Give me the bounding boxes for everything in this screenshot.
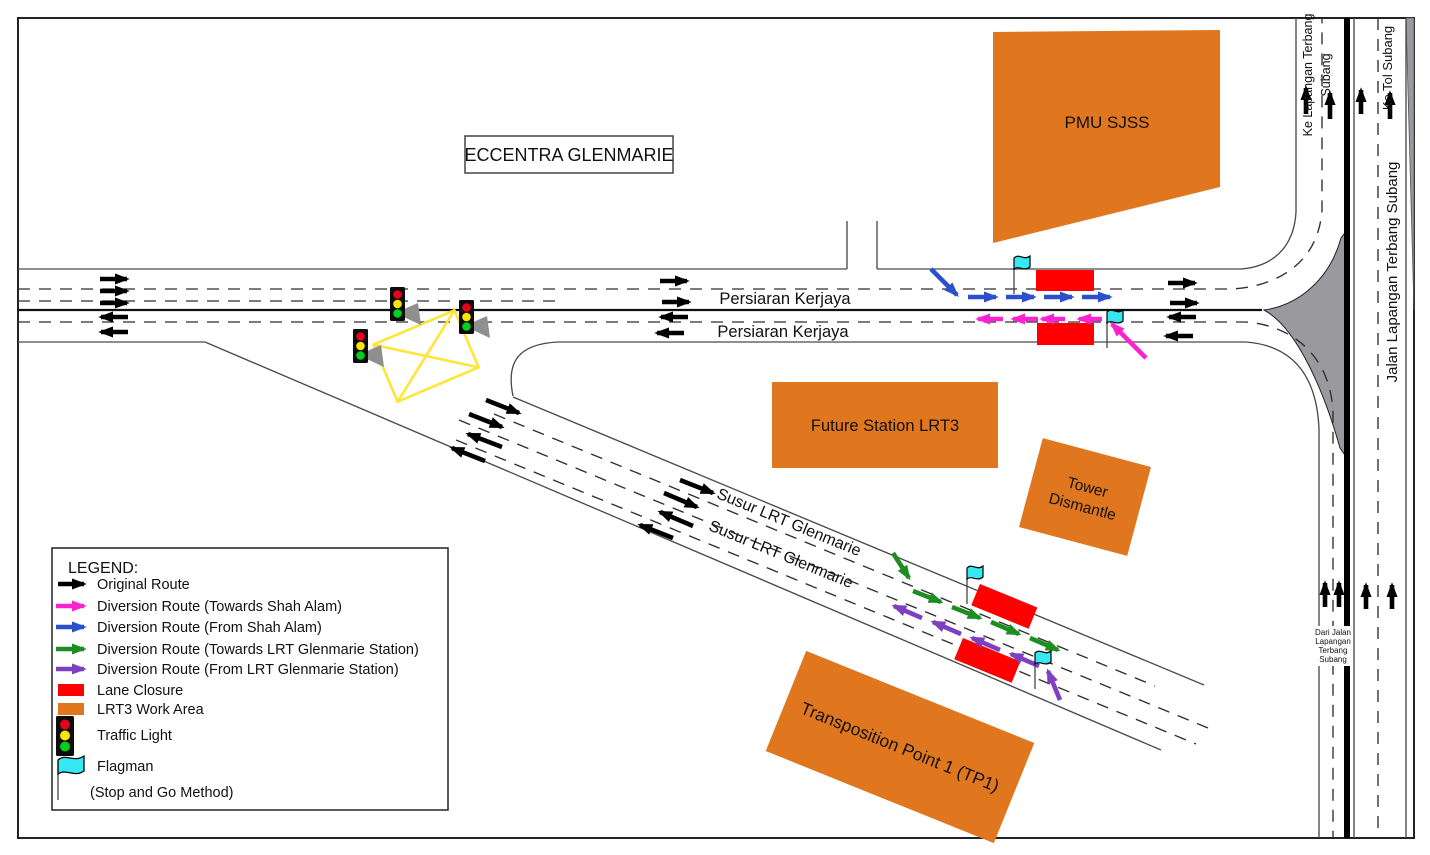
legend-label: LRT3 Work Area	[97, 702, 205, 718]
lane-closure-swatch	[58, 684, 84, 696]
flagman-icon	[58, 756, 84, 774]
legend: LEGEND: Original Route Diversion Route (…	[52, 548, 448, 810]
legend-label: Diversion Route (Towards Shah Alam)	[97, 599, 342, 615]
legend-label: Diversion Route (From LRT Glenmarie Stat…	[97, 662, 399, 678]
dari-jalan-label: Dari Jalan Lapangan Terbang Subang	[1315, 626, 1351, 666]
dari-line1: Dari Jalan	[1315, 628, 1351, 637]
eccentra-glenmarie-box: ECCENTRA GLENMARIE	[464, 136, 673, 173]
lane-closure-westbound	[1037, 323, 1094, 345]
legend-sublabel: (Stop and Go Method)	[90, 785, 233, 801]
dari-line4: Subang	[1319, 655, 1347, 664]
dari-line3: Terbang	[1319, 646, 1348, 655]
future-station-label: Future Station LRT3	[811, 417, 959, 435]
legend-item-diversion-towards-lrt: Diversion Route (Towards LRT Glenmarie S…	[56, 642, 419, 658]
work-area-swatch	[58, 703, 84, 715]
pmu-sjss-label: PMU SJSS	[1064, 113, 1149, 132]
ke-lapangan-label-line1: Ke Lapangan Terbang	[1301, 14, 1315, 137]
persiaran-kerjaya-top-label: Persiaran Kerjaya	[719, 290, 851, 308]
legend-item-diversion-towards-shah-alam: Diversion Route (Towards Shah Alam)	[56, 599, 342, 615]
eccentra-glenmarie-label: ECCENTRA GLENMARIE	[464, 145, 673, 165]
legend-label: Flagman	[97, 759, 153, 775]
legend-label: Diversion Route (From Shah Alam)	[97, 620, 322, 636]
legend-title: LEGEND:	[68, 560, 138, 577]
traffic-diversion-plan: PMU SJSS Future Station LRT3 Tower Disma…	[0, 0, 1430, 855]
legend-label: Diversion Route (Towards LRT Glenmarie S…	[97, 642, 419, 658]
legend-label: Traffic Light	[97, 728, 172, 744]
legend-label: Lane Closure	[97, 683, 183, 699]
persiaran-kerjaya-bottom-label: Persiaran Kerjaya	[717, 323, 849, 341]
ke-tol-subang-label: Ke Tol Subang	[1380, 26, 1395, 110]
dari-line2: Lapangan	[1315, 637, 1351, 646]
plan-drawing: PMU SJSS Future Station LRT3 Tower Disma…	[0, 0, 1430, 855]
jalan-lapangan-label: Jalan Lapangan Terbang Subang	[1384, 162, 1401, 383]
ke-lapangan-label-line2: Subang	[1319, 53, 1333, 96]
legend-item-diversion-from-lrt: Diversion Route (From LRT Glenmarie Stat…	[56, 662, 399, 678]
lane-closure-eastbound	[1036, 270, 1094, 291]
legend-label: Original Route	[97, 577, 190, 593]
